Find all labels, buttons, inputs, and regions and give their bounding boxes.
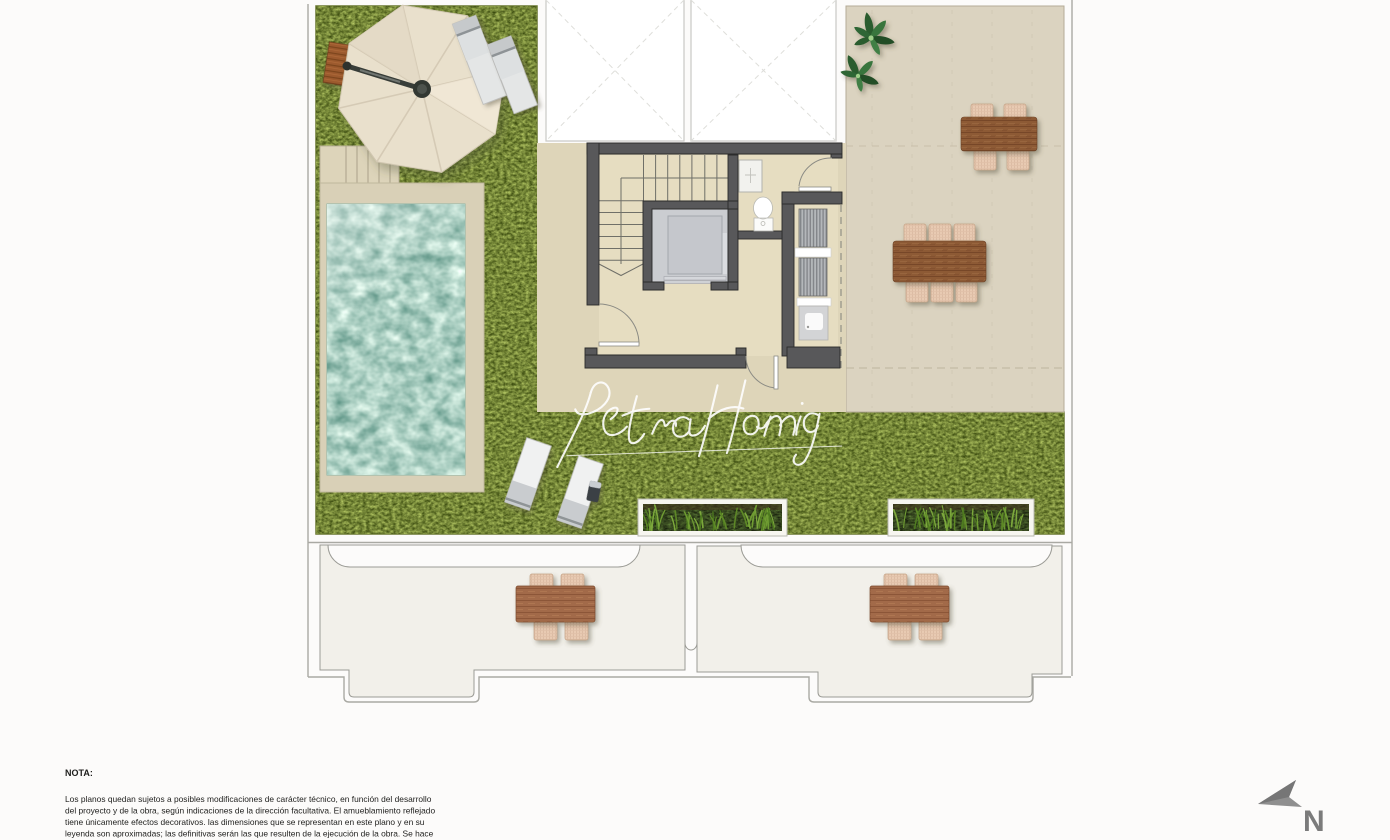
svg-text:tiene únicamente efectos decor: tiene únicamente efectos decorativos. la…: [65, 817, 425, 827]
svg-text:N: N: [1303, 805, 1325, 838]
svg-text:del proyecto y de la obra, seg: del proyecto y de la obra, según indicac…: [65, 806, 435, 816]
svg-text:leyenda son aproximadas; las d: leyenda son aproximadas; las definitivas…: [65, 829, 434, 839]
svg-text:NOTA:: NOTA:: [65, 768, 93, 778]
svg-text:Los planos quedan sujetos a po: Los planos quedan sujetos a posibles mod…: [65, 794, 432, 804]
